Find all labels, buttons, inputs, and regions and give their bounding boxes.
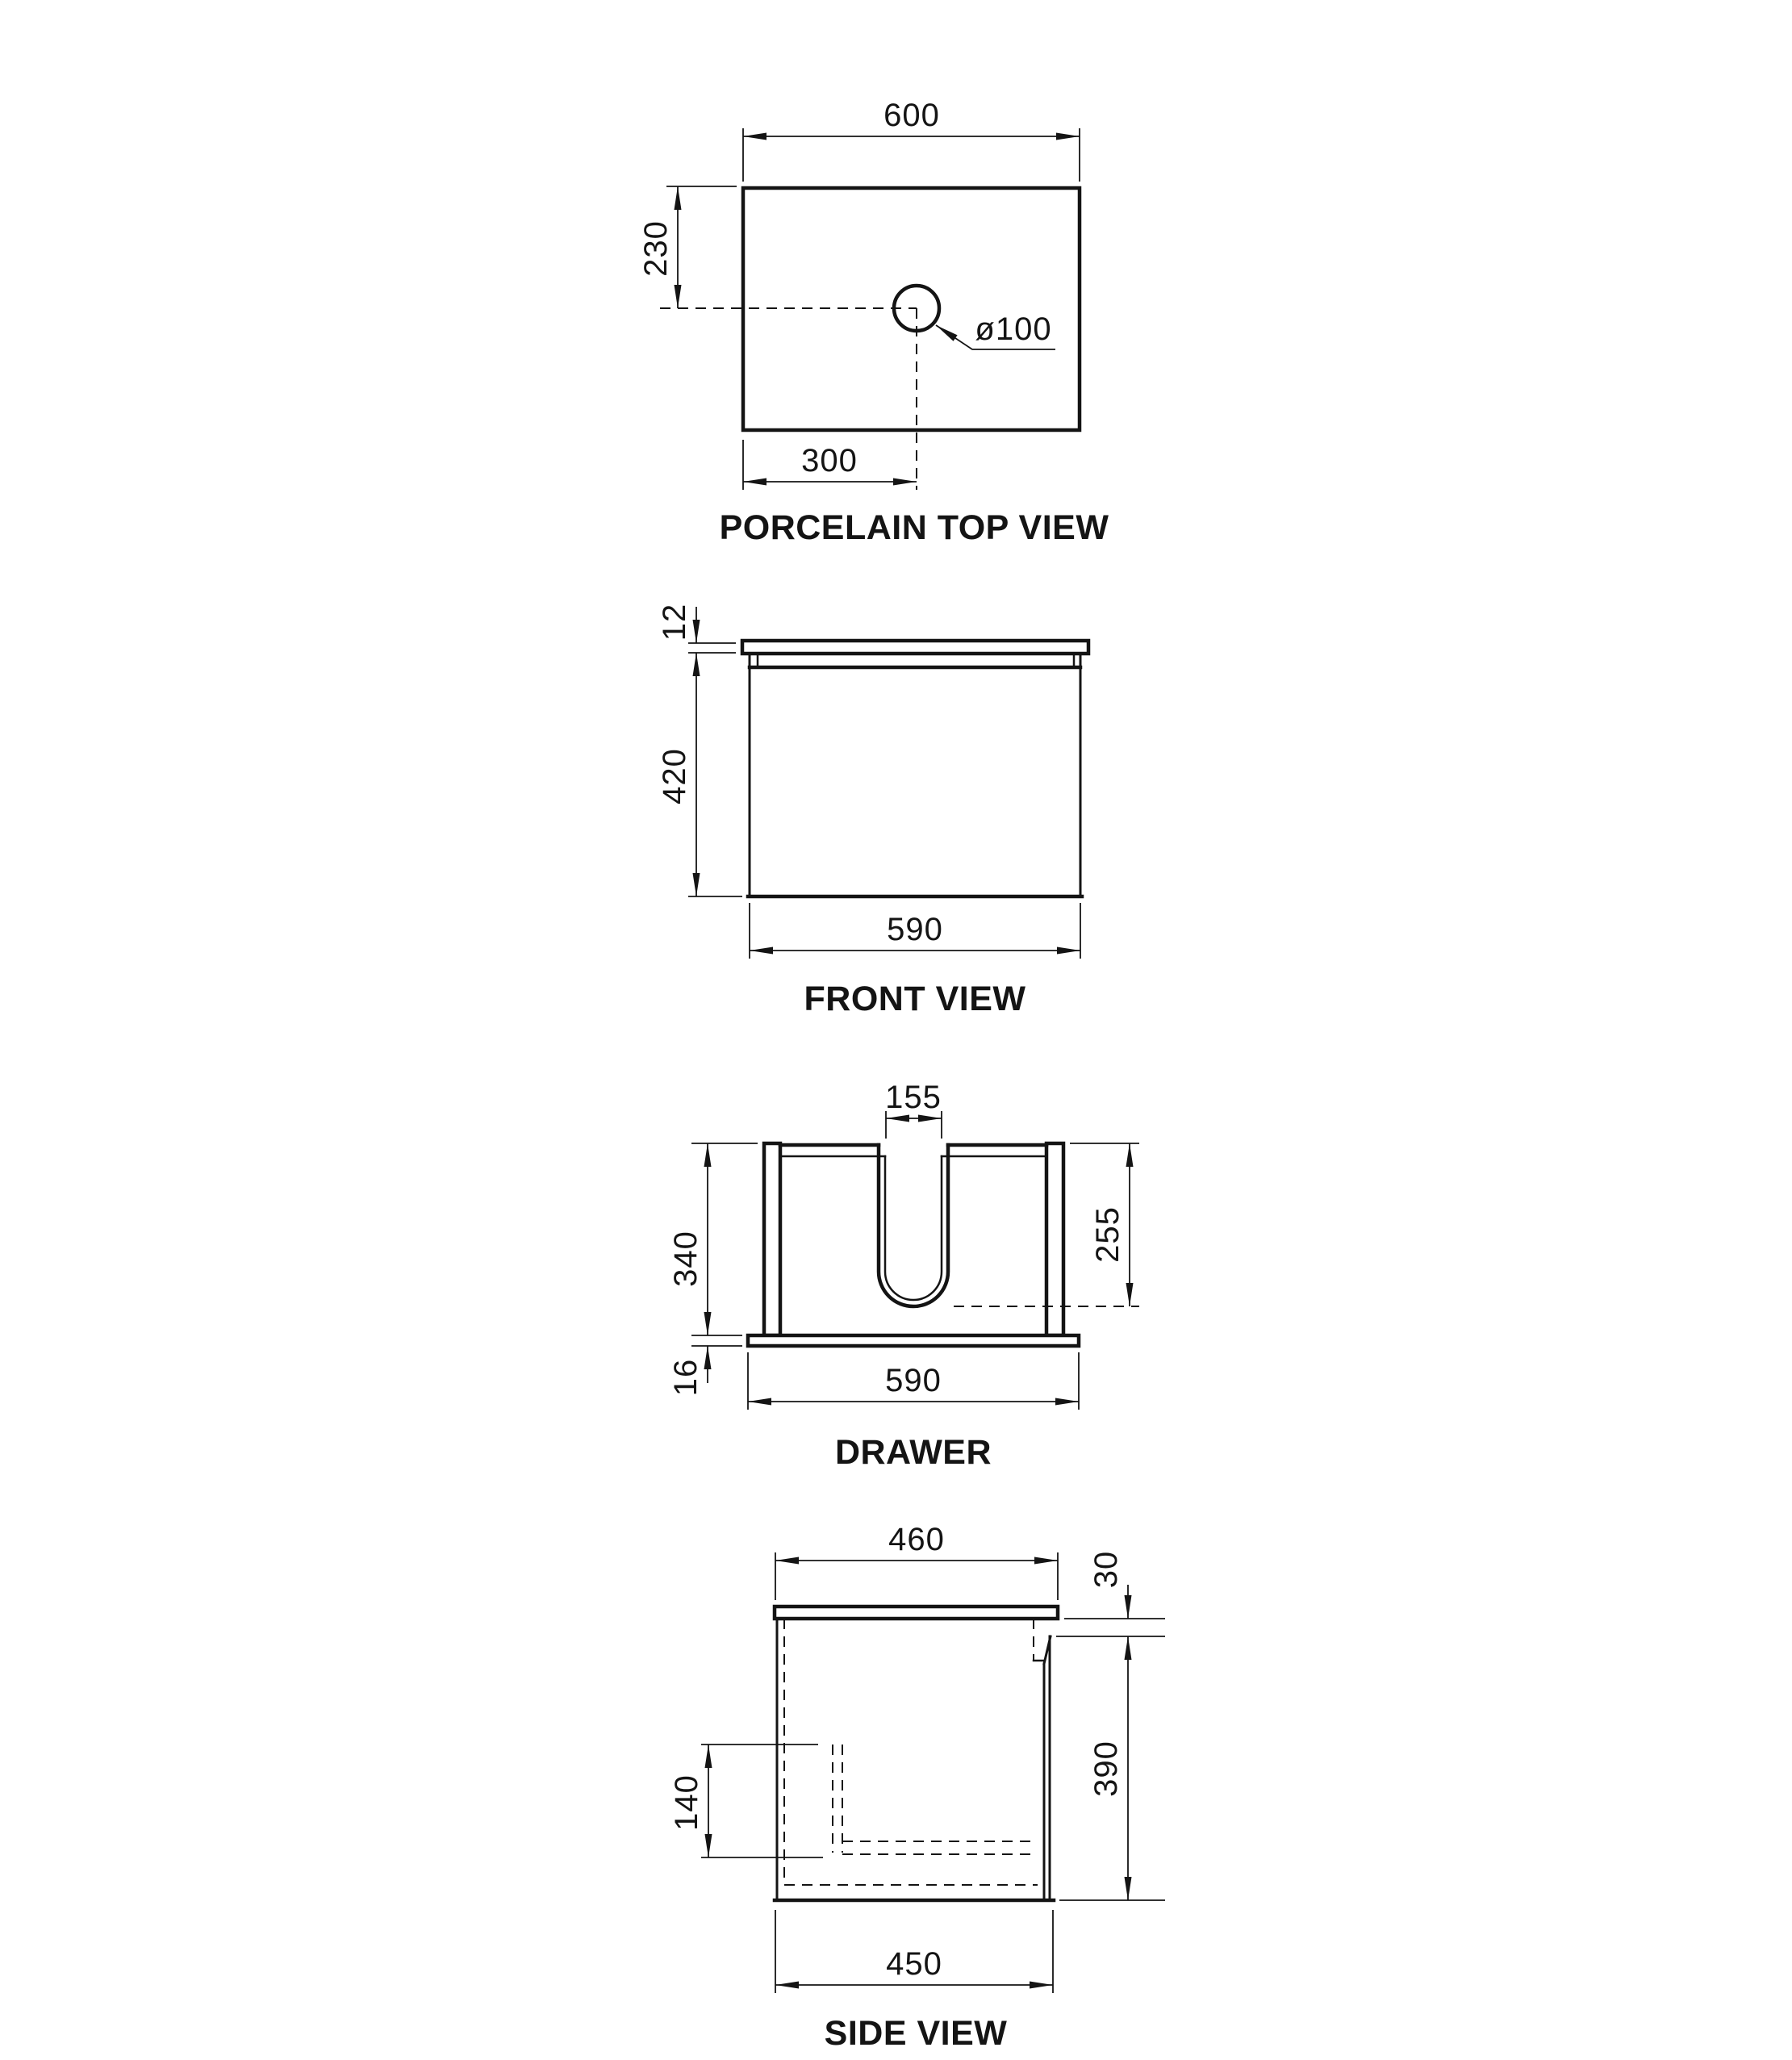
- drawer-base-board: [748, 1335, 1079, 1346]
- vanity-drawing-svg: 600 230 ø100 300 PORCELAIN TOP VIEW: [0, 0, 1792, 2060]
- u-cutout-outer: [879, 1145, 948, 1306]
- dim-label-cabinet-height: 420: [657, 748, 692, 804]
- dim-cabinet-width: 590: [750, 903, 1080, 959]
- dim-base-thickness: 16: [668, 1335, 742, 1396]
- porcelain-top-view: 600 230 ø100 300 PORCELAIN TOP VIEW: [638, 98, 1109, 547]
- dim-top-depth: 460: [775, 1522, 1058, 1600]
- dim-hole-from-left: 300: [743, 440, 917, 490]
- dim-label-cutout-width: 155: [885, 1080, 942, 1115]
- dim-drawer-base-height: 140: [669, 1745, 823, 1857]
- dim-label-top-width: 600: [883, 98, 940, 133]
- dim-label-top-thickness: 12: [657, 604, 692, 641]
- dim-label-hole-from-back: 230: [638, 220, 674, 277]
- dim-body-height: 390: [1059, 1636, 1165, 1900]
- top-view-title: PORCELAIN TOP VIEW: [720, 508, 1109, 547]
- dim-top-to-handle: 30: [1056, 1551, 1165, 1636]
- dim-label-drawer-base-height: 140: [669, 1774, 704, 1831]
- dim-body-depth: 450: [775, 1910, 1053, 1993]
- dim-top-thickness: 12: [657, 604, 736, 653]
- drawer-left-rail: [764, 1143, 780, 1335]
- dim-label-base-thickness: 16: [668, 1359, 704, 1397]
- dim-cabinet-height: 420: [657, 653, 742, 896]
- dim-label-hole-from-left: 300: [801, 443, 858, 478]
- dim-base-width: 590: [748, 1352, 1079, 1410]
- dim-label-side-height: 340: [668, 1231, 704, 1287]
- u-cutout-inner: [885, 1156, 942, 1300]
- drawer-view: 155 340 255 16 590 DRAWER: [668, 1080, 1139, 1472]
- dim-label-base-width: 590: [885, 1363, 942, 1398]
- side-view-title: SIDE VIEW: [825, 2014, 1008, 2053]
- dim-label-hole-diameter: ø100: [975, 311, 1051, 347]
- dim-label-cutout-depth: 255: [1090, 1206, 1126, 1263]
- technical-drawing-sheet: 600 230 ø100 300 PORCELAIN TOP VIEW: [0, 0, 1792, 2060]
- dim-label-top-depth: 460: [888, 1522, 945, 1557]
- dim-hole-from-back: 230: [638, 186, 737, 308]
- dim-label-body-depth: 450: [886, 1946, 942, 1982]
- side-view: 460 30 390 140 450 SIDE VIEW: [669, 1522, 1165, 2053]
- front-view: 12 420 590 FRONT VIEW: [657, 604, 1088, 1018]
- dim-side-height: 340: [668, 1143, 758, 1335]
- side-top-slab: [775, 1607, 1058, 1619]
- dim-cutout-width: 155: [885, 1080, 942, 1139]
- front-top-slab: [742, 641, 1088, 654]
- dim-label-cabinet-width: 590: [887, 912, 943, 947]
- dim-label-top-to-handle: 30: [1088, 1551, 1124, 1589]
- dim-top-width: 600: [743, 98, 1080, 182]
- dim-label-body-height: 390: [1088, 1740, 1124, 1797]
- drawer-view-title: DRAWER: [835, 1433, 992, 1472]
- front-view-title: FRONT VIEW: [804, 980, 1026, 1018]
